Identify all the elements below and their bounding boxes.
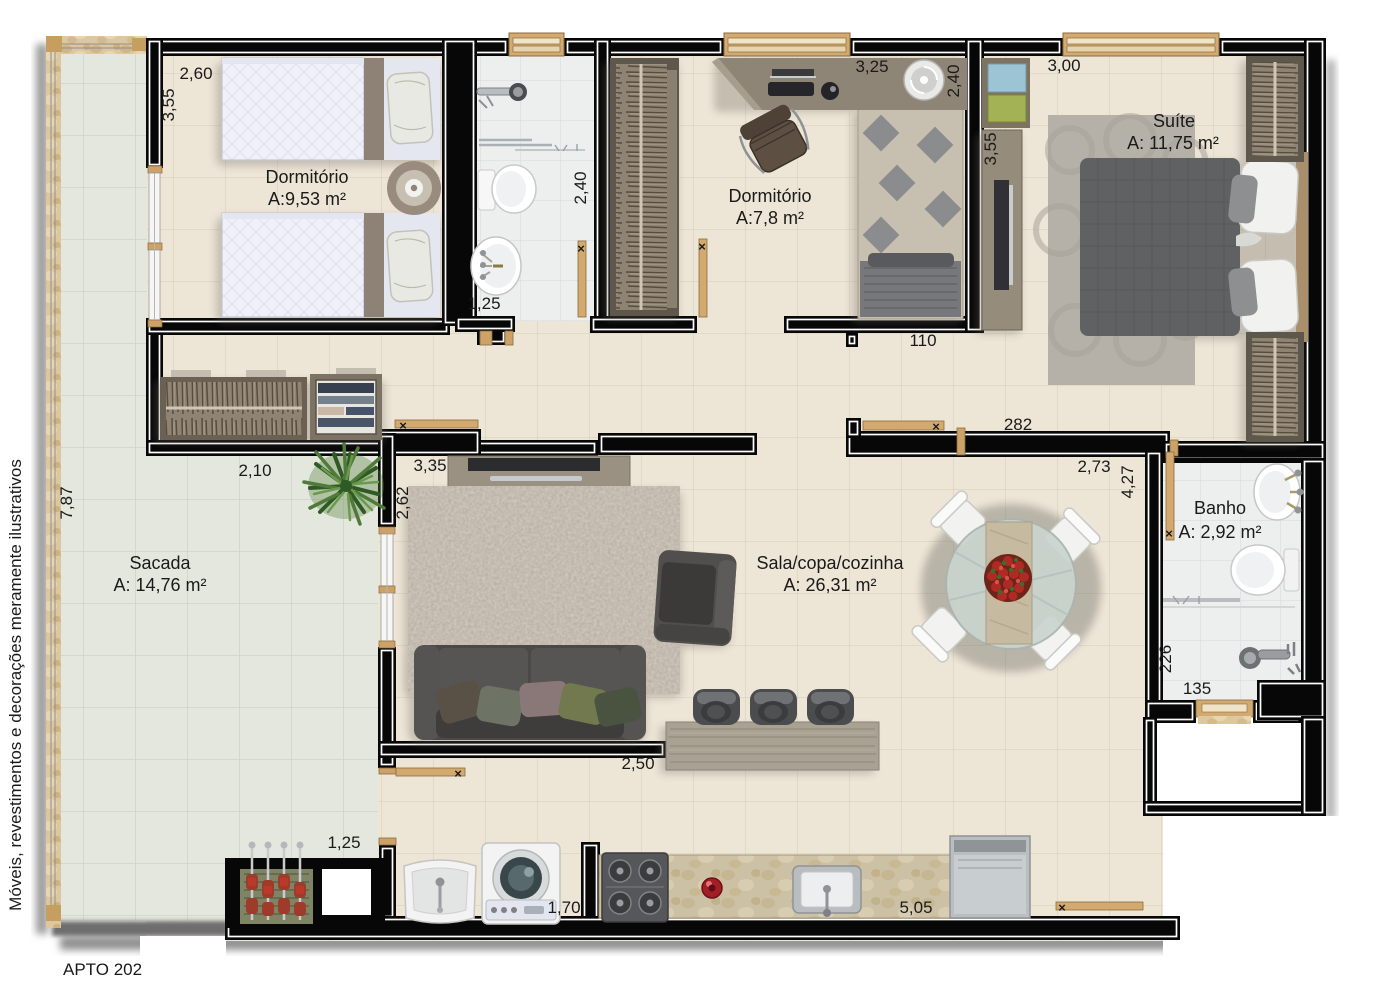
svg-text:4,27: 4,27 [1118, 465, 1137, 498]
svg-text:×: × [1058, 900, 1066, 915]
svg-text:2,40: 2,40 [571, 171, 590, 204]
svg-text:Sala/copa/cozinha: Sala/copa/cozinha [756, 553, 904, 573]
svg-text:×: × [932, 419, 940, 434]
svg-text:7,87: 7,87 [57, 486, 76, 519]
svg-text:×: × [577, 241, 585, 256]
svg-text:A: 26,31 m²: A: 26,31 m² [783, 575, 876, 595]
svg-text:3,55: 3,55 [159, 88, 178, 121]
svg-text:110: 110 [909, 331, 936, 350]
svg-text:A:7,8 m²: A:7,8 m² [736, 208, 804, 228]
svg-text:2,60: 2,60 [179, 64, 212, 83]
svg-text:226: 226 [1156, 645, 1175, 673]
svg-text:1,25: 1,25 [327, 833, 360, 852]
svg-text:Dormitório: Dormitório [265, 167, 348, 187]
svg-text:282: 282 [1004, 415, 1032, 434]
svg-text:Suíte: Suíte [1153, 111, 1195, 131]
svg-text:3,25: 3,25 [855, 57, 888, 76]
svg-text:Banho: Banho [1194, 498, 1246, 518]
svg-text:×: × [698, 239, 706, 254]
svg-text:135: 135 [1183, 679, 1211, 698]
svg-text:A:9,53 m²: A:9,53 m² [268, 189, 346, 209]
svg-text:Móveis, revestimentos e decora: Móveis, revestimentos e decorações meram… [6, 459, 25, 911]
svg-text:A: 14,76 m²: A: 14,76 m² [113, 575, 206, 595]
svg-text:3,55: 3,55 [981, 132, 1000, 165]
svg-text:×: × [454, 766, 462, 781]
svg-text:A: 11,75 m²: A: 11,75 m² [1127, 133, 1219, 153]
svg-text:3,35: 3,35 [413, 456, 446, 475]
svg-text:Sacada: Sacada [129, 553, 191, 573]
svg-text:A: 2,92 m²: A: 2,92 m² [1178, 522, 1261, 542]
svg-text:2,62: 2,62 [393, 486, 412, 519]
svg-text:1,70: 1,70 [547, 898, 580, 917]
svg-text:5,05: 5,05 [899, 898, 932, 917]
svg-text:×: × [399, 418, 407, 433]
svg-text:3,00: 3,00 [1047, 56, 1080, 75]
svg-text:2,50: 2,50 [621, 754, 654, 773]
svg-text:2,40: 2,40 [944, 64, 963, 97]
svg-text:2,73: 2,73 [1077, 457, 1110, 476]
svg-text:1,25: 1,25 [467, 294, 500, 313]
svg-text:APTO 202: APTO 202 [63, 960, 142, 979]
svg-text:2,10: 2,10 [238, 461, 271, 480]
svg-text:Dormitório: Dormitório [728, 186, 811, 206]
svg-text:×: × [1165, 526, 1173, 541]
